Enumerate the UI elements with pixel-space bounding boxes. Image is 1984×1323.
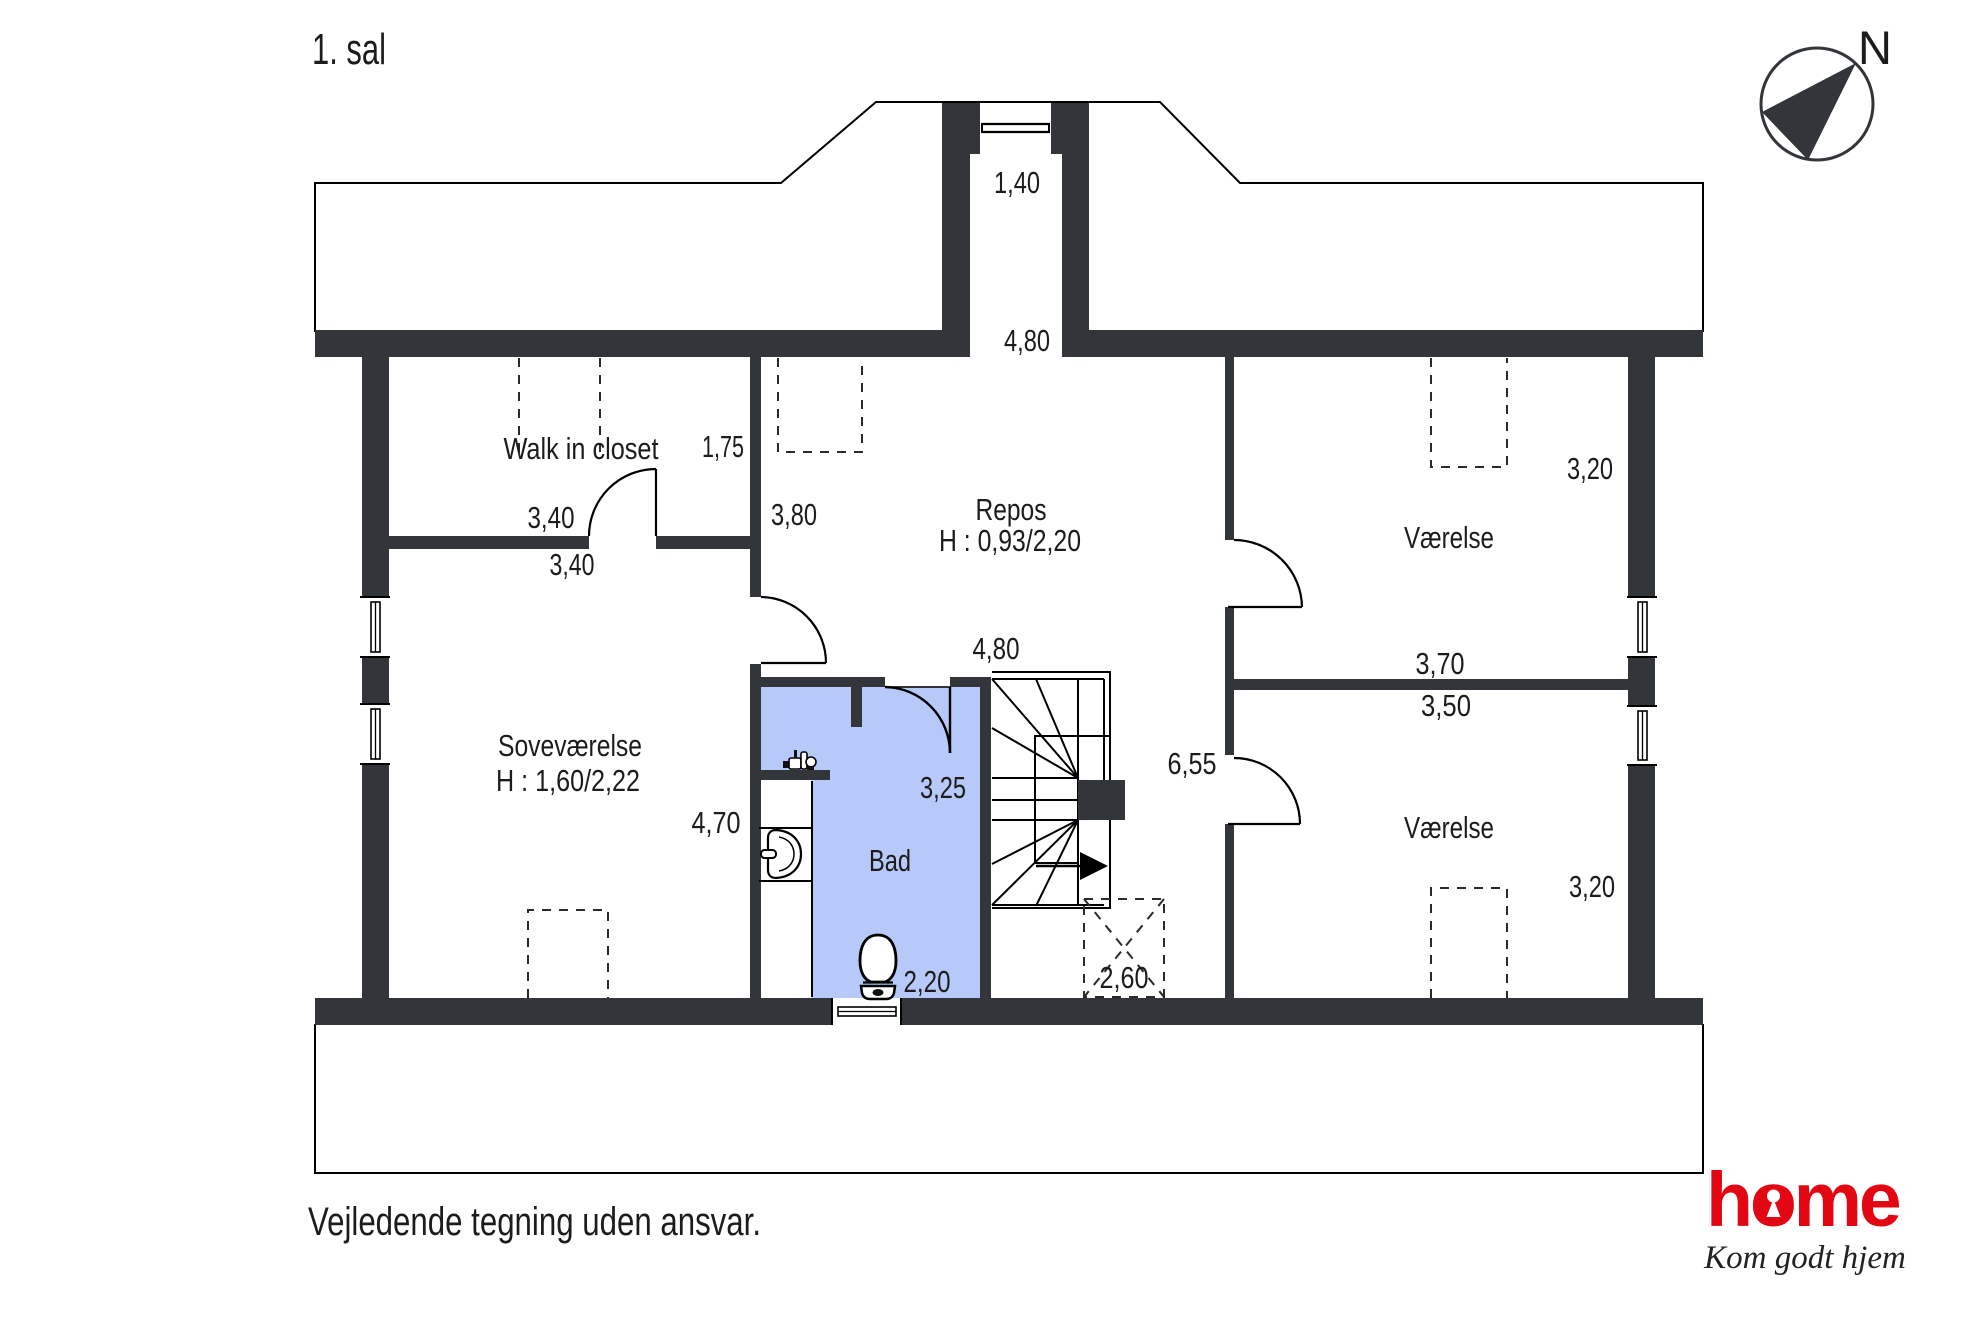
- svg-text:1. sal: 1. sal: [312, 25, 386, 74]
- svg-text:1,75: 1,75: [702, 429, 744, 464]
- svg-text:Walk in closet: Walk in closet: [504, 431, 659, 466]
- svg-text:2,60: 2,60: [1100, 960, 1149, 995]
- svg-text:Soveværelse: Soveværelse: [498, 728, 642, 763]
- svg-text:4,80: 4,80: [1004, 323, 1050, 358]
- svg-text:3,40: 3,40: [550, 547, 595, 582]
- svg-text:4,80: 4,80: [973, 631, 1020, 666]
- svg-text:4,70: 4,70: [692, 805, 741, 840]
- svg-text:3,70: 3,70: [1416, 646, 1465, 681]
- svg-text:home: home: [1706, 1157, 1900, 1243]
- svg-text:H : 0,93/2,20: H : 0,93/2,20: [939, 523, 1081, 558]
- svg-text:Repos: Repos: [976, 492, 1047, 527]
- svg-text:Kom godt hjem: Kom godt hjem: [1703, 1240, 1906, 1276]
- svg-text:3,25: 3,25: [920, 770, 966, 805]
- svg-text:Værelse: Værelse: [1404, 810, 1494, 845]
- svg-text:3,40: 3,40: [528, 500, 575, 535]
- svg-text:3,50: 3,50: [1421, 688, 1471, 723]
- svg-text:3,80: 3,80: [771, 497, 817, 532]
- svg-text:H : 1,60/2,22: H : 1,60/2,22: [496, 763, 640, 798]
- svg-text:2,20: 2,20: [904, 964, 951, 999]
- svg-text:3,20: 3,20: [1567, 451, 1613, 486]
- svg-text:6,55: 6,55: [1168, 746, 1217, 781]
- svg-text:1,40: 1,40: [994, 165, 1040, 200]
- svg-text:N: N: [1858, 21, 1892, 74]
- svg-text:3,20: 3,20: [1569, 869, 1615, 904]
- svg-text:Vejledende tegning uden ansvar: Vejledende tegning uden ansvar.: [308, 1200, 761, 1244]
- svg-text:Værelse: Værelse: [1404, 520, 1494, 555]
- svg-text:Bad: Bad: [869, 843, 911, 878]
